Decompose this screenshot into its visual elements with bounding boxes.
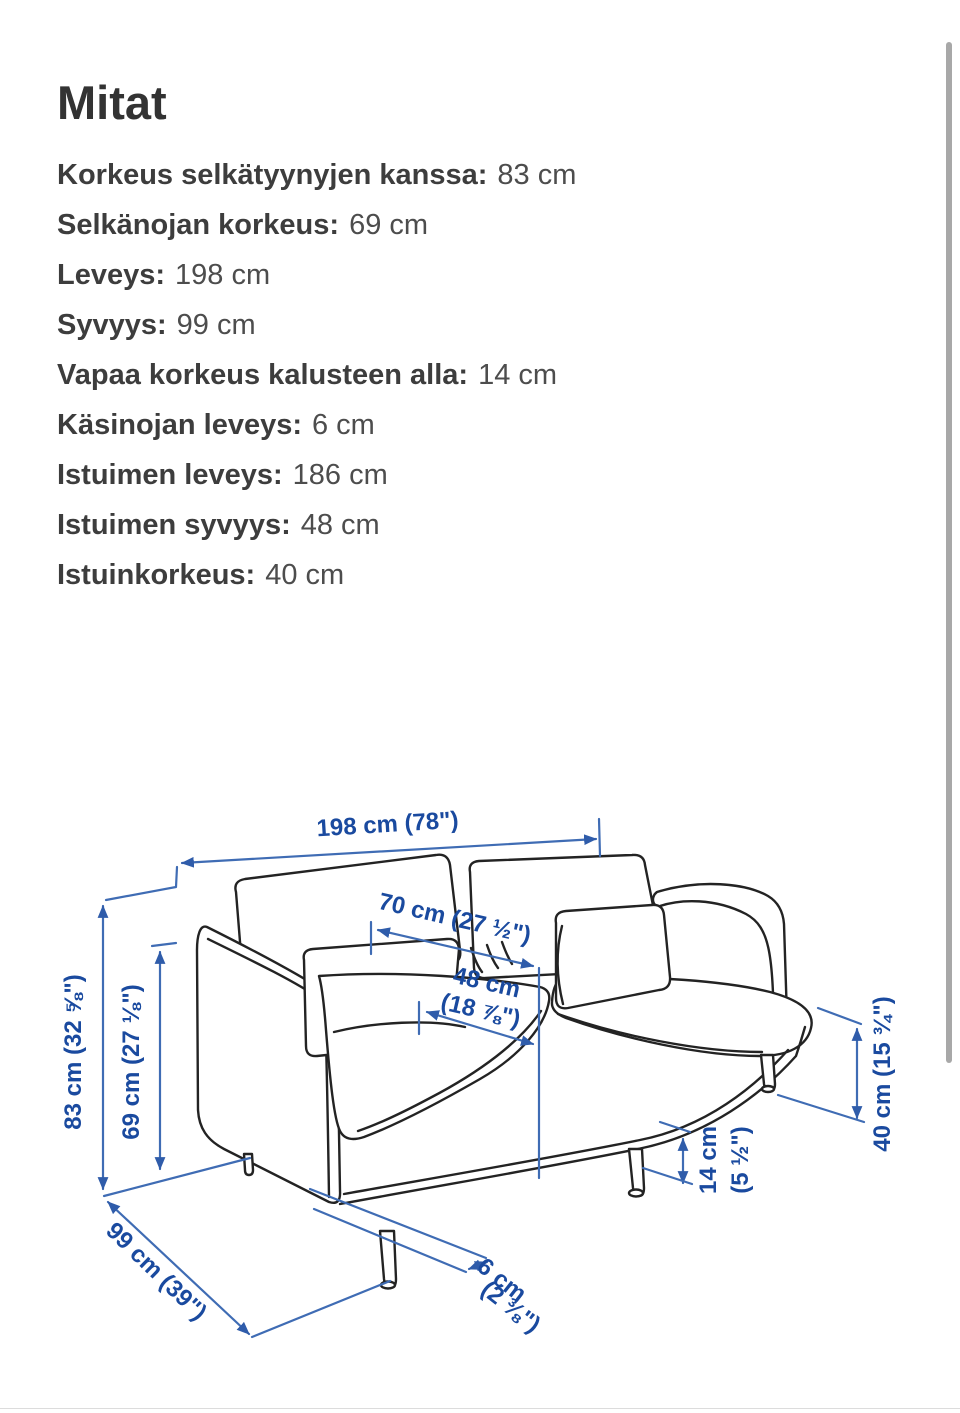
spec-row: Selkänojan korkeus:69 cm [57,200,917,250]
label-seat-height: 40 cm (15 ¾") [869,996,896,1151]
spec-row: Syvyys:99 cm [57,300,917,350]
spec-label: Istuimen syvyys: [57,509,291,541]
spec-label: Syvyys: [57,309,167,341]
spec-value: 198 cm [175,259,270,291]
spec-value: 69 cm [349,209,428,241]
spec-label: Vapaa korkeus kalusteen alla: [57,359,468,391]
dim-back-height-69 [152,943,176,1169]
spec-value: 48 cm [301,509,380,541]
spec-row: Istuinkorkeus:40 cm [57,550,917,600]
spec-row: Leveys:198 cm [57,250,917,300]
back-left-leg [244,1154,253,1175]
label-clearance-2: (5 ½") [727,1126,754,1193]
dimension-spec-list: Korkeus selkätyynyjen kanssa:83 cm Selkä… [57,150,917,600]
spec-value: 14 cm [478,359,557,391]
spec-value: 99 cm [177,309,256,341]
label-width: 198 cm (78") [316,807,460,843]
spec-row: Käsinojan leveys:6 cm [57,400,917,450]
scrollbar-thumb[interactable] [946,42,952,1063]
label-depth: 99 cm (39") [101,1217,212,1326]
label-back-height: 69 cm (27 ⅛") [118,984,145,1139]
spec-label: Istuimen leveys: [57,459,283,491]
spec-label: Käsinojan leveys: [57,409,302,441]
spec-value: 83 cm [497,159,576,191]
spec-label: Selkänojan korkeus: [57,209,339,241]
spec-value: 40 cm [265,559,344,591]
label-total-height: 83 cm (32 ⅝") [60,974,87,1129]
dim-clearance-14 [643,1122,692,1184]
spec-row: Korkeus selkätyynyjen kanssa:83 cm [57,150,917,200]
spec-row: Istuimen leveys:186 cm [57,450,917,500]
spec-label: Korkeus selkätyynyjen kanssa: [57,159,487,191]
front-middle-leg-foot [629,1190,643,1197]
right-leg-foot [762,1086,774,1092]
spec-row: Vapaa korkeus kalusteen alla:14 cm [57,350,917,400]
sofa-diagram-svg: 198 cm (78") 83 cm (32 ⅝") 69 cm (27 ⅛")… [0,780,960,1408]
spec-label: Leveys: [57,259,165,291]
spec-value: 6 cm [312,409,375,441]
sofa-dimension-diagram: 198 cm (78") 83 cm (32 ⅝") 69 cm (27 ⅛")… [0,780,960,1408]
spec-label: Istuinkorkeus: [57,559,255,591]
page-title: Mitat [57,75,167,130]
spec-value: 186 cm [293,459,388,491]
label-clearance-1: 14 cm [695,1126,722,1194]
spec-row: Istuimen syvyys:48 cm [57,500,917,550]
bottom-divider [0,1408,960,1409]
